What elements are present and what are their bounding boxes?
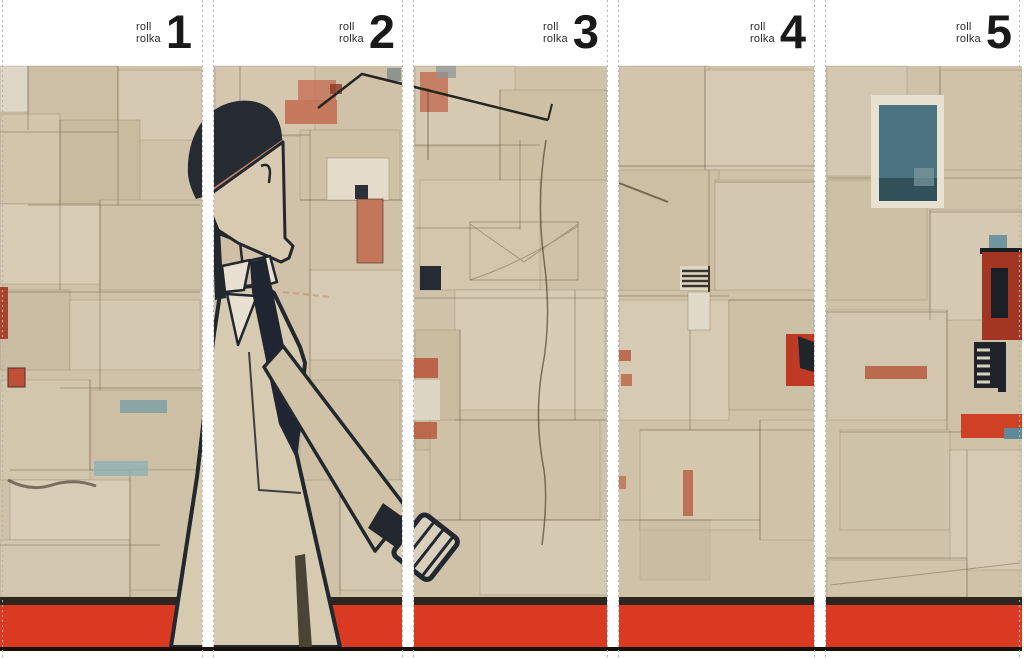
cut-line [1019, 0, 1020, 658]
roll-label-3: roll rolka 3 [543, 12, 597, 52]
cut-line [402, 0, 403, 658]
rolka-word: rolka [956, 33, 981, 45]
cut-line [814, 0, 815, 658]
baseline [0, 647, 1022, 651]
roll-number: 5 [986, 12, 1010, 52]
red-floor-stripe [0, 597, 1022, 647]
cut-line [2, 0, 3, 658]
teal-patch [120, 400, 167, 413]
roll-word: roll [339, 21, 364, 33]
roll-number: 1 [166, 12, 190, 52]
roll-word: roll [543, 21, 568, 33]
mural-artwork [0, 0, 1024, 658]
roll-word: roll [956, 21, 981, 33]
navy-square [420, 266, 441, 290]
cut-line [413, 0, 414, 658]
roll-number: 2 [369, 12, 393, 52]
roll-label-1: roll rolka 1 [136, 12, 190, 52]
roll-number: 4 [780, 12, 804, 52]
cut-line [618, 0, 619, 658]
cut-line [825, 0, 826, 658]
rolka-word: rolka [543, 33, 568, 45]
rolka-word: rolka [136, 33, 161, 45]
rolka-word: rolka [750, 33, 775, 45]
cut-line [607, 0, 608, 658]
roll-word: roll [136, 21, 161, 33]
roll-label-2: roll rolka 2 [339, 12, 393, 52]
roll-number: 3 [573, 12, 597, 52]
rolka-word: rolka [339, 33, 364, 45]
mural-roll-preview: roll rolka 1 roll rolka 2 roll rolka 3 r… [0, 0, 1024, 658]
roll-word: roll [750, 21, 775, 33]
roll-label-4: roll rolka 4 [750, 12, 804, 52]
cut-line [202, 0, 203, 658]
salmon-patch [285, 100, 337, 124]
roll-label-5: roll rolka 5 [956, 12, 1010, 52]
cut-line [213, 0, 214, 658]
